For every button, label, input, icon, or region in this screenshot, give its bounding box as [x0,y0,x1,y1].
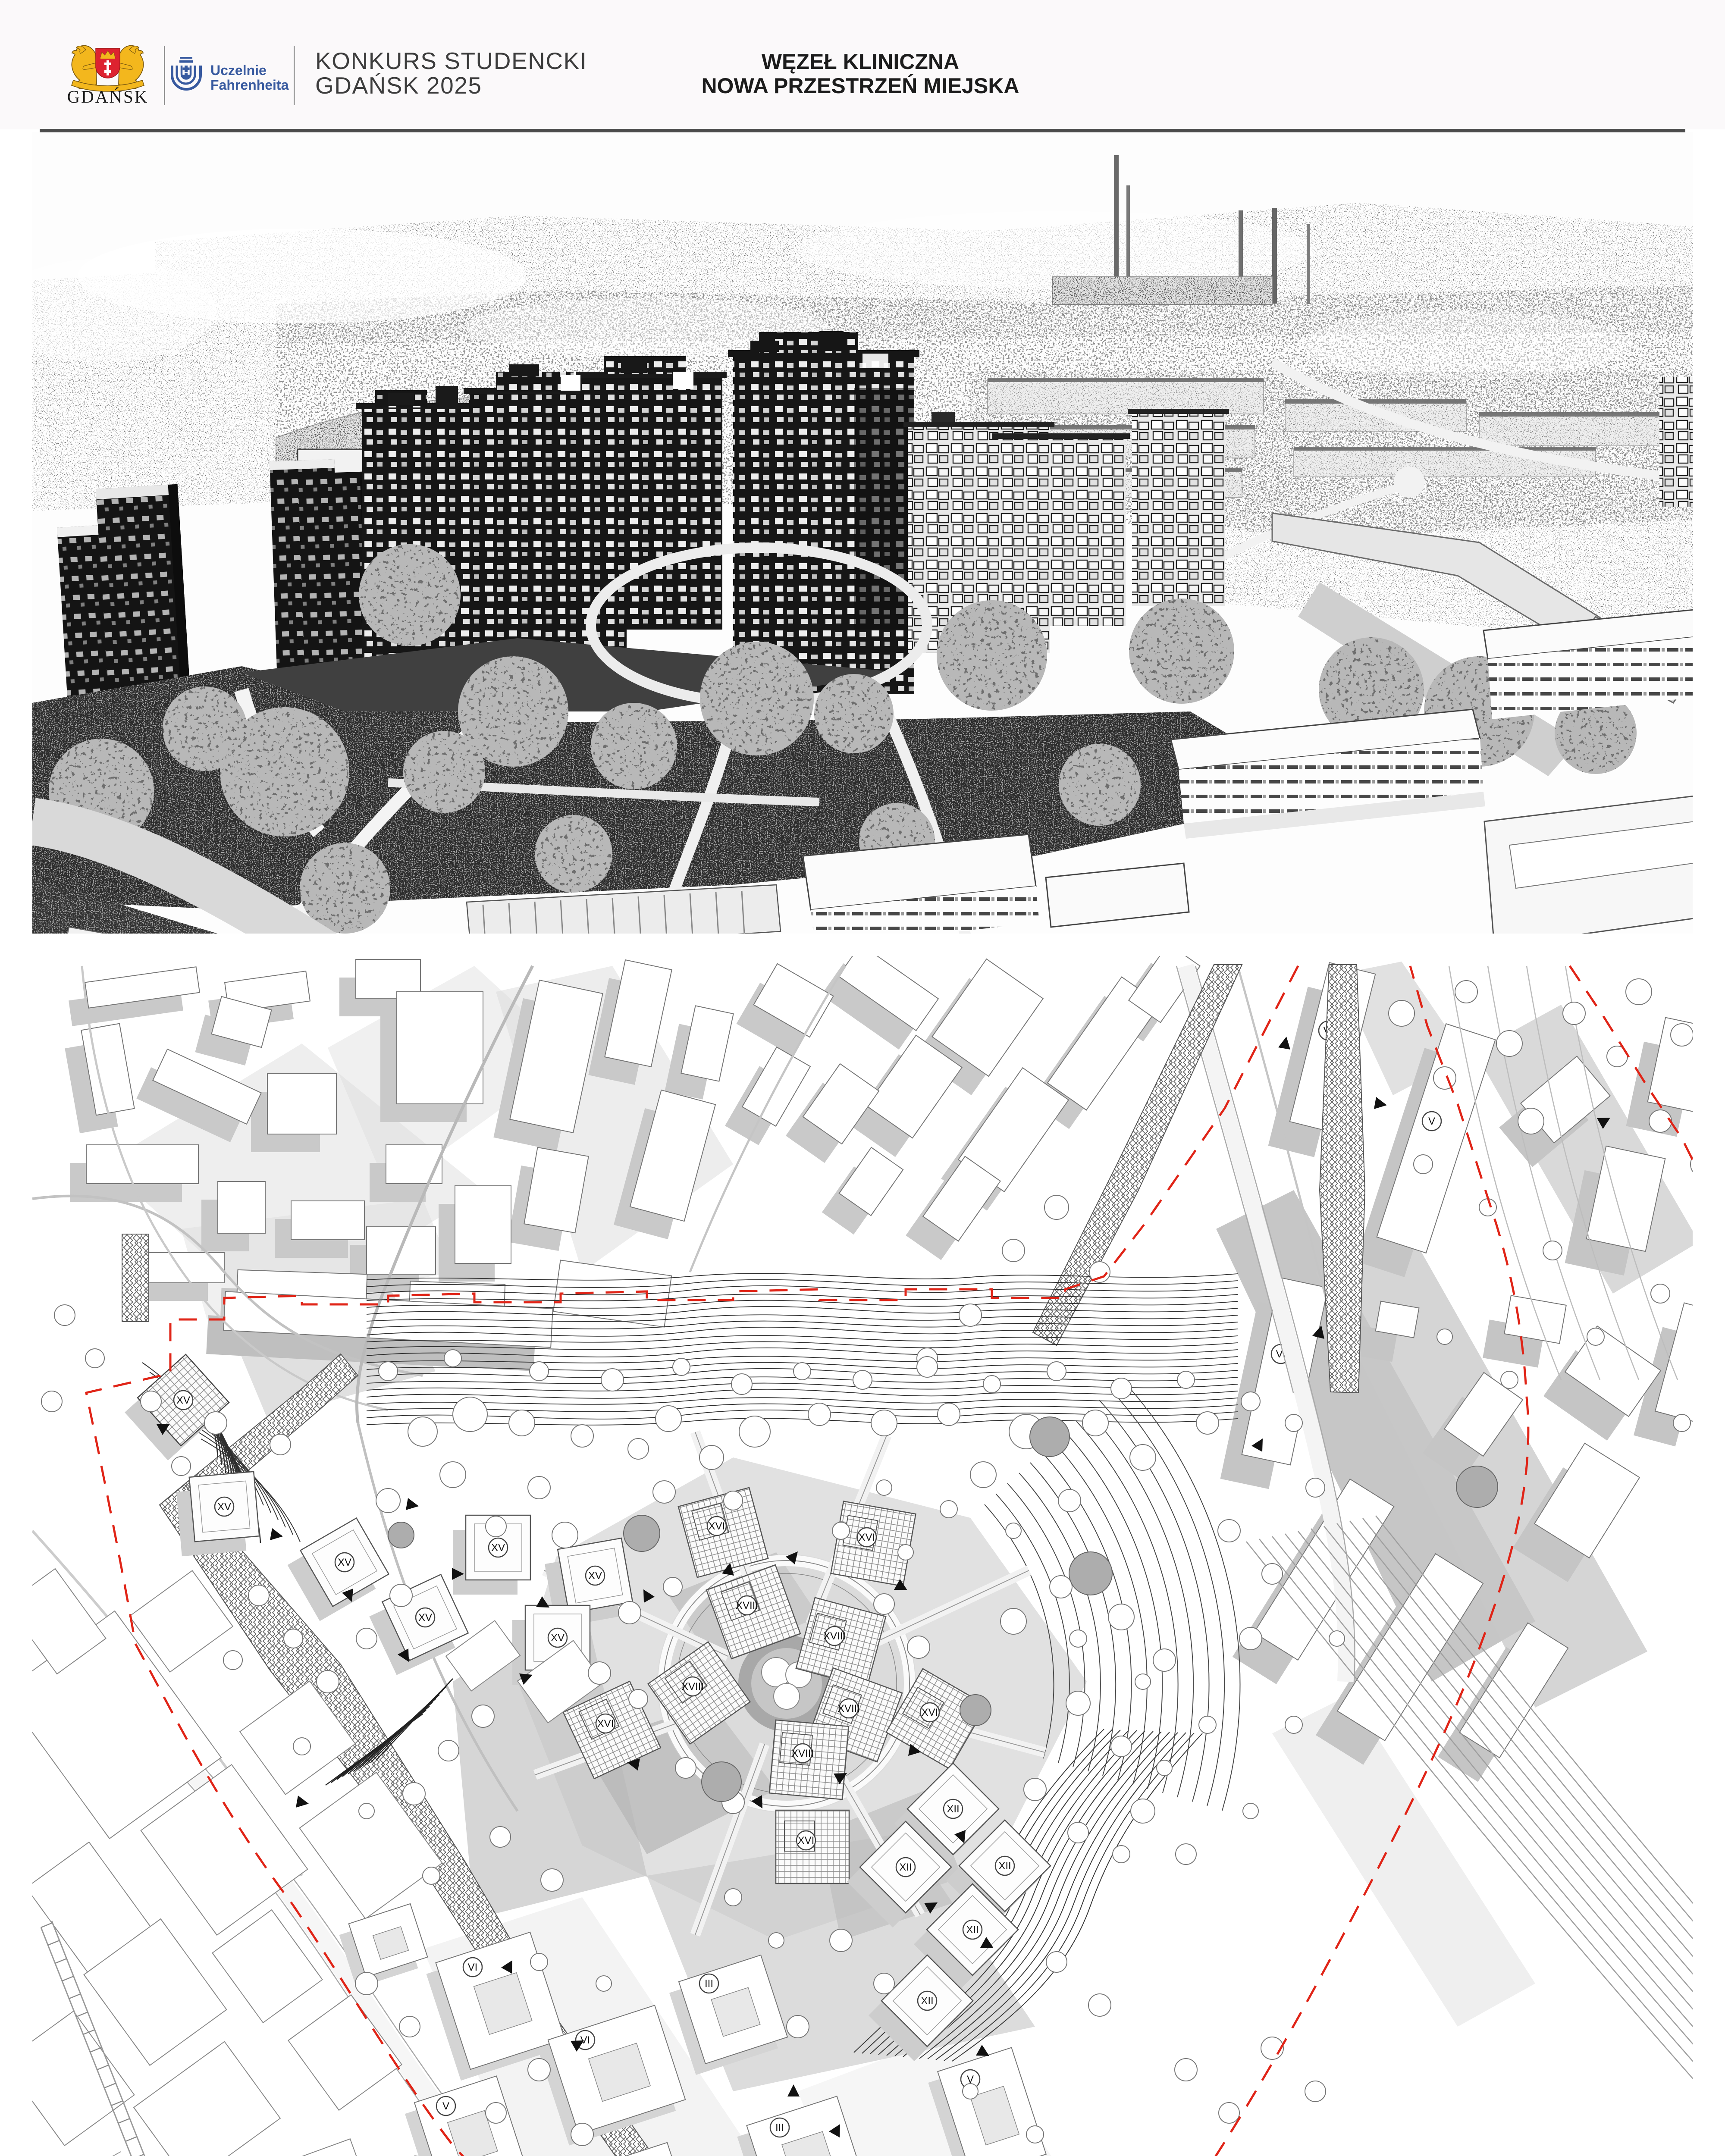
svg-text:GDAŃSK 2025: GDAŃSK 2025 [315,72,482,99]
svg-text:Uczelnie: Uczelnie [210,63,267,78]
svg-text:XII: XII [998,1860,1011,1872]
svg-text:XVI: XVI [922,1707,938,1718]
svg-text:XVIII: XVIII [681,1681,704,1692]
svg-text:XII: XII [966,1924,979,1936]
svg-text:KONKURS STUDENCKI: KONKURS STUDENCKI [315,47,587,74]
svg-text:III: III [705,1978,713,1990]
svg-text:XV: XV [338,1557,351,1568]
svg-text:XV: XV [418,1612,432,1623]
svg-text:XVIII: XVIII [791,1748,814,1759]
svg-text:NOWA PRZESTRZEŃ MIEJSKA: NOWA PRZESTRZEŃ MIEJSKA [701,74,1019,98]
svg-text:XV: XV [176,1395,190,1406]
svg-text:XVI: XVI [859,1532,875,1543]
svg-text:WĘZEŁ KLINICZNA: WĘZEŁ KLINICZNA [762,50,959,74]
svg-text:XVI: XVI [798,1835,815,1846]
svg-text:XVIII: XVIII [736,1600,758,1611]
svg-text:XVIII: XVIII [823,1630,846,1642]
svg-text:VI: VI [580,2034,590,2046]
svg-text:XV: XV [588,1570,602,1582]
svg-text:III: III [775,2122,784,2134]
svg-text:VI: VI [468,1962,478,1973]
svg-text:GDAŃSK: GDAŃSK [67,87,149,107]
svg-text:XV: XV [217,1501,231,1513]
svg-text:XII: XII [899,1861,912,1873]
svg-text:V: V [1428,1116,1435,1127]
svg-text:XV: XV [551,1632,565,1644]
svg-text:XV: XV [491,1542,505,1554]
svg-text:XII: XII [947,1803,959,1815]
svg-text:Fahrenheita: Fahrenheita [210,77,289,93]
svg-text:XVI: XVI [597,1718,614,1730]
svg-text:V: V [442,2100,449,2112]
svg-text:XVIII: XVIII [837,1703,860,1714]
svg-text:XVI: XVI [709,1520,725,1532]
svg-text:XII: XII [921,1995,933,2007]
